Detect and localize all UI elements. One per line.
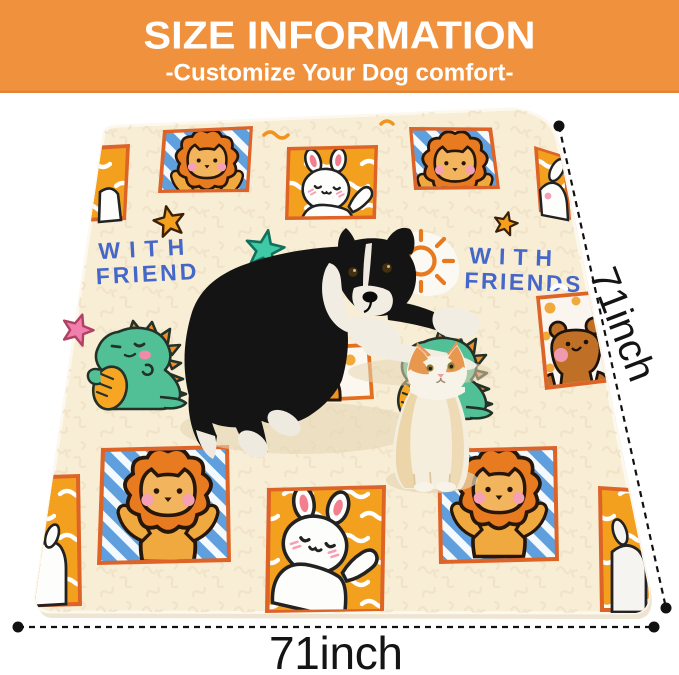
svg-text:FRIEND: FRIEND <box>95 258 200 289</box>
svg-text:SIZE INFORMATION: SIZE INFORMATION <box>144 15 536 58</box>
svg-text:FRIENDS: FRIENDS <box>464 267 583 297</box>
svg-text:-Customize Your Dog comfort-: -Customize Your Dog comfort- <box>166 60 514 87</box>
svg-text:71inch: 71inch <box>269 627 403 675</box>
